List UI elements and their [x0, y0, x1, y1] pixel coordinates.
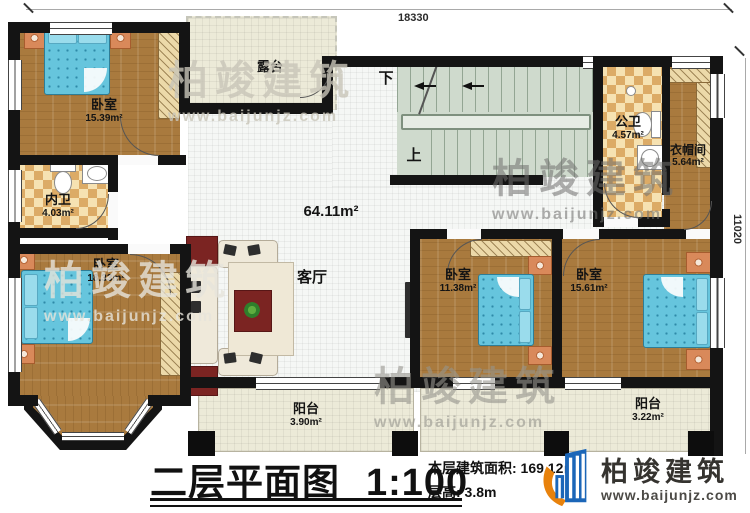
title-underline: [150, 498, 462, 501]
room-label-bedroom-bottom-left: 卧室 18.33m²: [62, 258, 150, 284]
wall: [8, 395, 38, 406]
room-area: 64.11m²: [303, 203, 358, 220]
wall: [322, 56, 720, 67]
sink-basin: [641, 149, 659, 167]
cushion: [191, 281, 201, 293]
bay-window-glass: [62, 432, 124, 441]
wall: [179, 22, 190, 114]
room-label-bedroom-right: 卧室 15.61m²: [545, 268, 633, 294]
window: [8, 278, 22, 372]
dimension-right-value: 11020: [731, 199, 743, 259]
wardrobe: [470, 240, 552, 257]
pillow: [24, 274, 38, 306]
pillow: [696, 312, 708, 345]
stair-arrow-icon: [414, 82, 424, 90]
logo-building-icon: [536, 446, 598, 508]
faucet: [626, 86, 636, 96]
title-underline: [150, 505, 462, 507]
stair-down-label: 下: [375, 71, 397, 88]
stair-arrow-icon: [462, 82, 472, 90]
living-area-value: 64.11m²: [286, 204, 376, 221]
room-area: 5.64m²: [662, 157, 714, 168]
room-name: 卧室: [60, 98, 148, 113]
dimension-tick: [723, 3, 734, 14]
room-name: 卧室: [414, 268, 502, 283]
wall: [662, 209, 670, 227]
company-name: 柏竣建筑: [601, 450, 729, 489]
pillow: [24, 307, 38, 339]
dimension-tick: [734, 46, 745, 57]
cushion: [191, 301, 201, 313]
room-label-balcony-right: 阳台 3.22m²: [604, 397, 692, 423]
dimension-top-value: 18330: [398, 12, 429, 24]
door-opening: [447, 229, 481, 239]
nightstand: [686, 349, 711, 370]
room-label-bedroom-mid-right: 卧室 11.38m²: [414, 268, 502, 294]
room-label-terrace: 露台: [235, 60, 305, 75]
company-website: www.baijunjz.com: [601, 487, 738, 503]
wall: [148, 395, 191, 406]
room-name: 客厅: [297, 269, 327, 286]
stair-handrail: [401, 114, 591, 130]
door-opening: [128, 244, 170, 254]
wall: [12, 228, 116, 238]
wardrobe: [666, 68, 712, 83]
room-label-cloakroom: 衣帽间 5.64m²: [662, 144, 714, 169]
nightstand: [686, 252, 711, 273]
wardrobe: [158, 27, 180, 119]
cushion: [223, 352, 236, 364]
floor-plan-sheet: 露台 卧室 15.39m² 内卫 4.03m² 卧室 18.33m² 64.11…: [0, 0, 750, 513]
nightstand: [528, 346, 552, 365]
door-opening: [108, 192, 118, 228]
room-name: 阳台: [262, 402, 350, 417]
toilet-bowl: [54, 171, 72, 194]
dimension-line-top: [26, 9, 732, 10]
room-label-balcony-center: 阳台 3.90m²: [262, 402, 350, 428]
stair-treads-lower: [431, 130, 593, 177]
room-label-bedroom-top-left: 卧室 15.39m²: [60, 98, 148, 124]
window: [50, 22, 112, 35]
wall: [8, 155, 186, 165]
sink-basin: [87, 166, 107, 181]
wall: [179, 103, 333, 114]
room-name: 公卫: [596, 115, 660, 130]
cushion: [247, 244, 261, 256]
window: [672, 56, 710, 69]
room-name: 内卫: [24, 193, 92, 208]
room-name: 衣帽间: [662, 144, 714, 157]
window: [710, 278, 725, 348]
room-label-inner-bath: 内卫 4.03m²: [24, 193, 92, 219]
window: [710, 74, 725, 118]
stair-up-label: 上: [403, 148, 425, 165]
room-label-living: 客厅: [282, 270, 342, 287]
door-opening: [118, 155, 158, 165]
window: [453, 377, 495, 390]
plant: [244, 302, 260, 318]
room-area: 15.39m²: [60, 113, 148, 124]
dimension-line-right: [745, 58, 746, 454]
room-area: 11.38m²: [414, 283, 502, 294]
room-area: 4.03m²: [24, 208, 92, 219]
room-name: 卧室: [62, 258, 150, 273]
pillow: [519, 278, 531, 310]
room-label-public-bath: 公卫 4.57m²: [596, 115, 660, 141]
sliding-door: [256, 377, 380, 390]
window: [8, 170, 22, 222]
dimension-tick: [23, 3, 34, 14]
floor-height-note: 层高: 3.8m: [428, 482, 496, 502]
company-logo-icon: [536, 446, 598, 508]
pillow: [519, 311, 531, 343]
stair-direction: 下: [378, 70, 393, 87]
stair-direction: 上: [406, 147, 421, 164]
wall: [552, 232, 562, 384]
pillow: [696, 278, 708, 311]
room-area: 18.33m²: [62, 273, 150, 284]
room-name: 阳台: [604, 397, 692, 412]
room-name: 卧室: [545, 268, 633, 283]
wall: [410, 232, 420, 384]
cushion: [223, 244, 237, 256]
door-opening: [604, 217, 638, 227]
stair-arrow-tail: [472, 85, 484, 87]
door-opening: [563, 229, 599, 239]
window: [565, 377, 621, 390]
wall: [662, 67, 670, 195]
wall: [390, 175, 543, 185]
room-area: 3.90m²: [262, 417, 350, 428]
stair-arrow-tail: [424, 85, 436, 87]
room-area: 3.22m²: [604, 412, 692, 423]
door-opening: [686, 229, 710, 239]
window: [8, 60, 22, 110]
room-area: 4.57m²: [596, 130, 660, 141]
room-area: 15.61m²: [545, 283, 633, 294]
room-name: 露台: [235, 60, 305, 75]
